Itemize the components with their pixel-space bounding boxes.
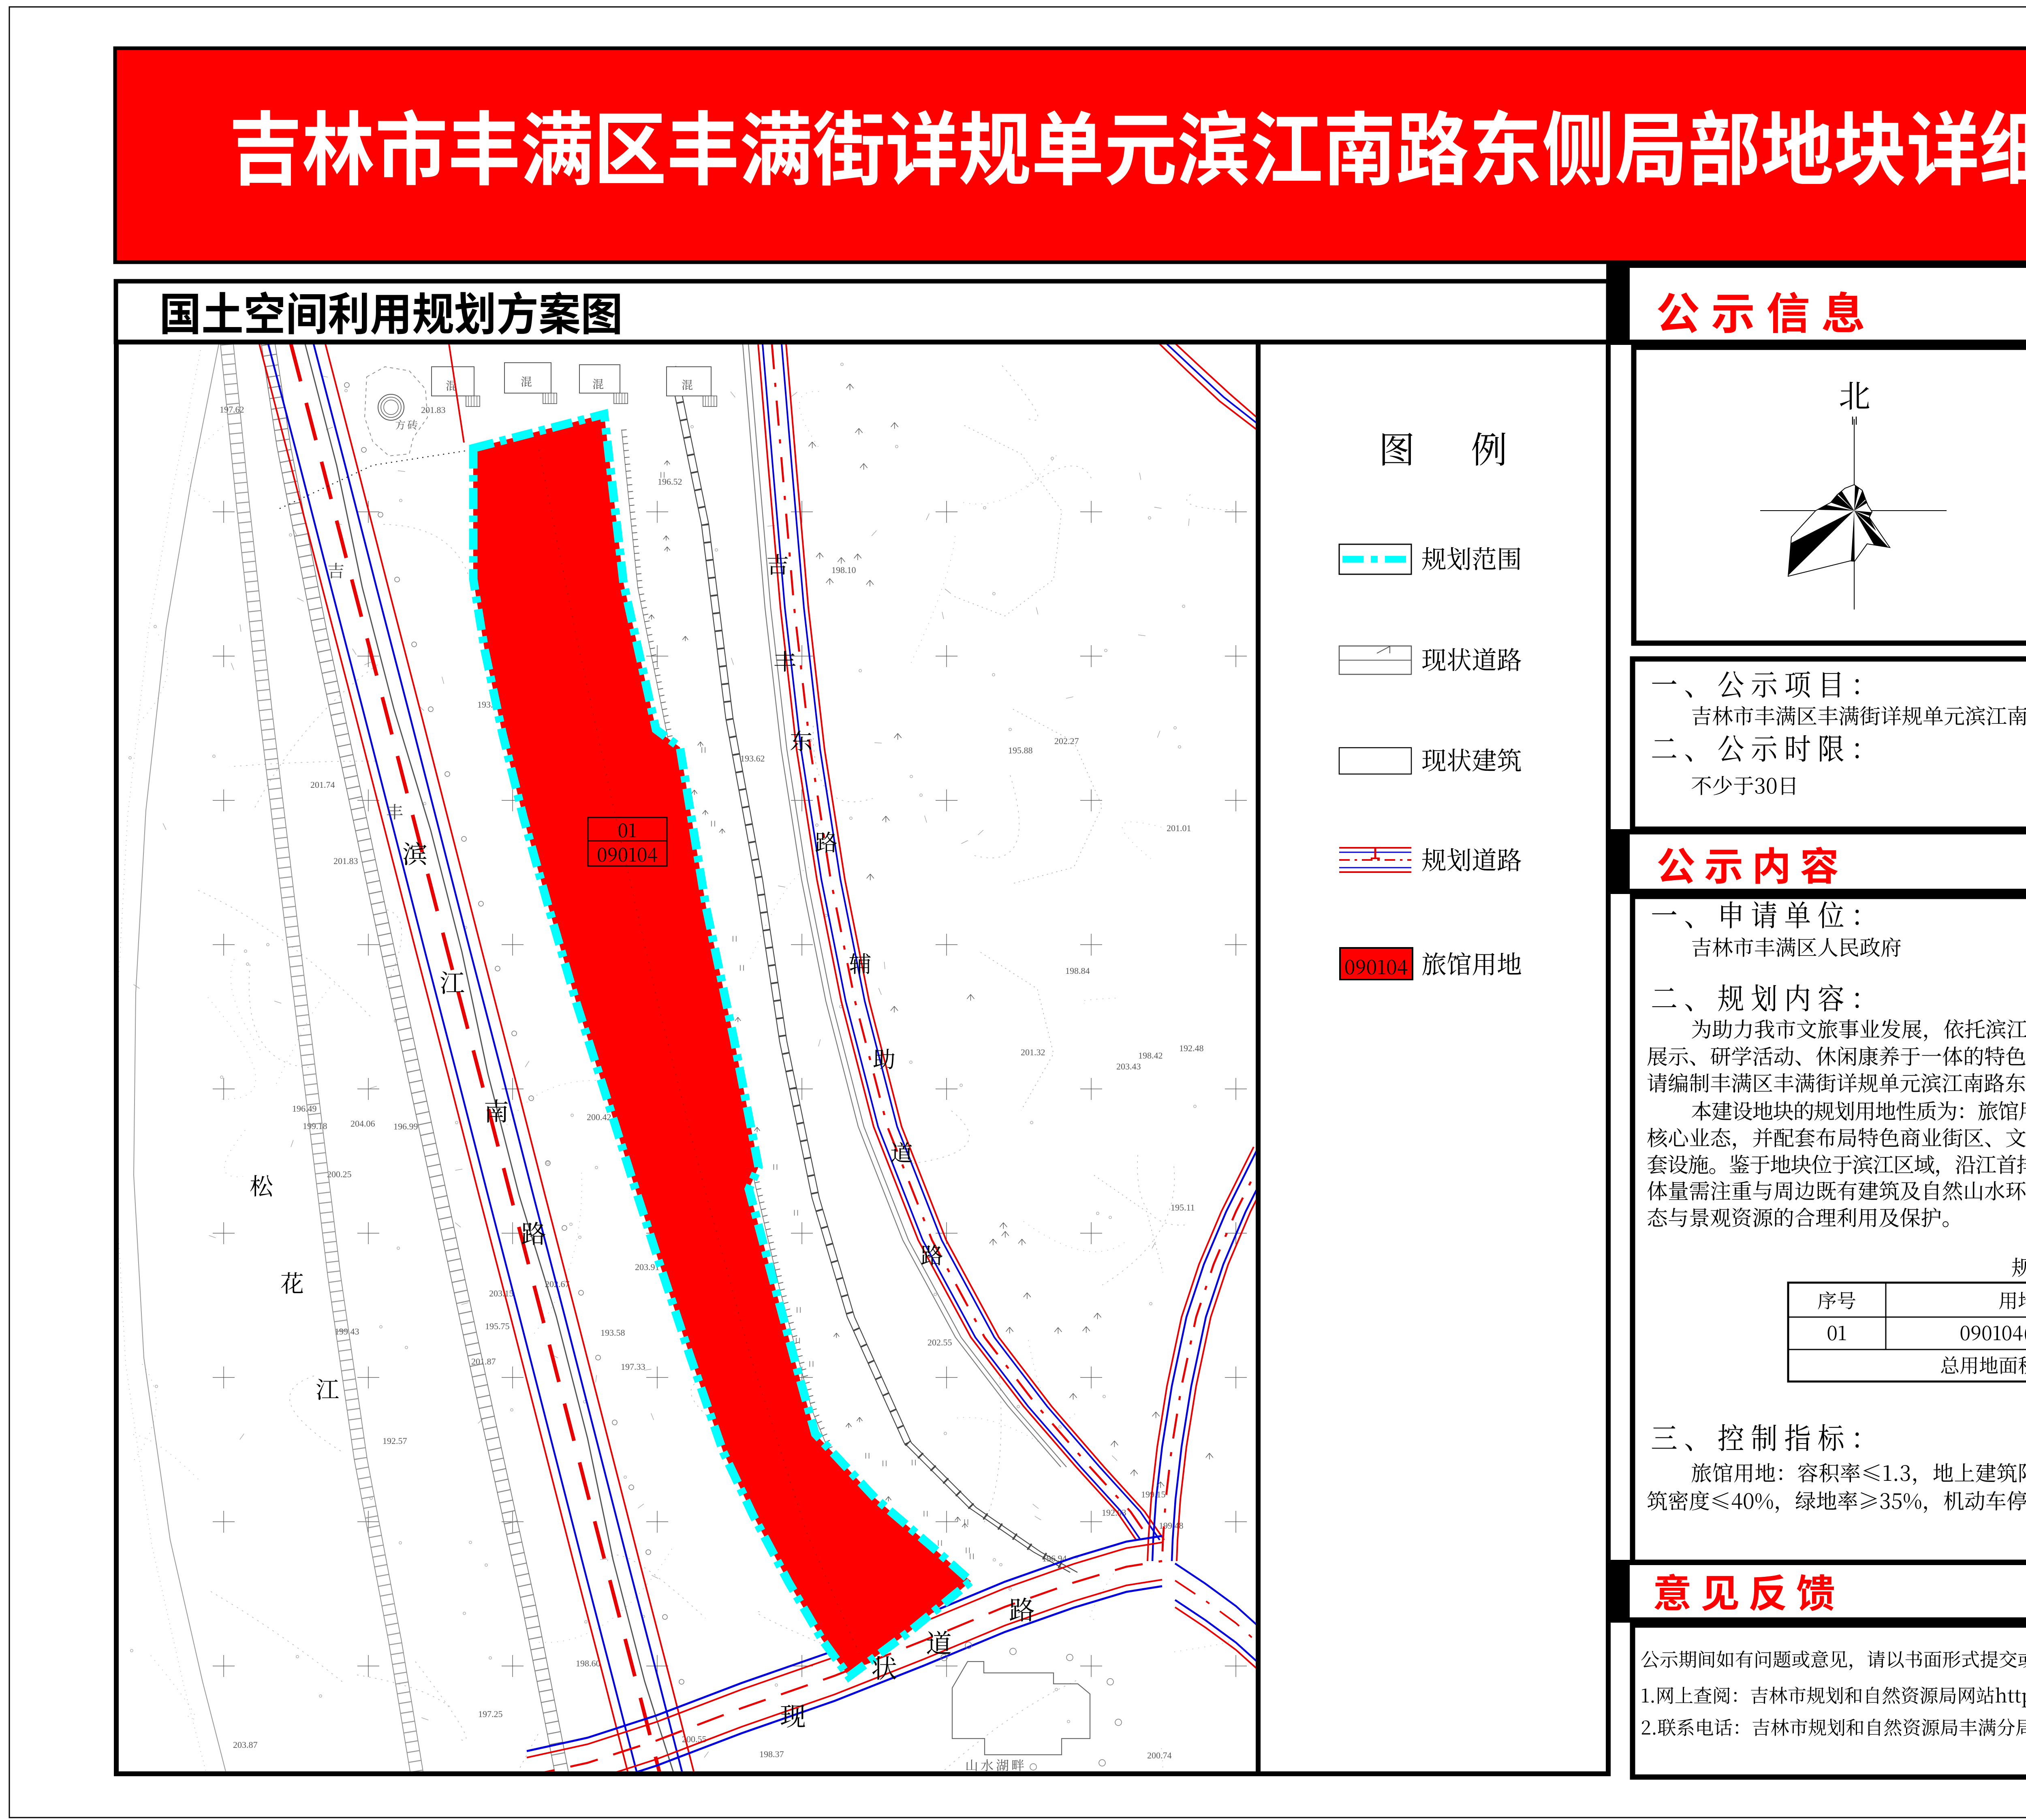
svg-text:193.62: 193.62 bbox=[740, 753, 765, 764]
svg-text:201.83: 201.83 bbox=[333, 856, 358, 866]
svg-text:203.43: 203.43 bbox=[1116, 1061, 1141, 1071]
svg-text:195.11: 195.11 bbox=[1171, 1202, 1195, 1213]
svg-text:198.37: 198.37 bbox=[759, 1749, 784, 1759]
svg-text:197.25: 197.25 bbox=[478, 1709, 503, 1719]
svg-text:196.49: 196.49 bbox=[292, 1104, 317, 1114]
svg-text:193.58: 193.58 bbox=[601, 1328, 625, 1338]
svg-text:203.87: 203.87 bbox=[233, 1740, 258, 1750]
svg-text:204.06: 204.06 bbox=[350, 1119, 375, 1129]
svg-text:200.42: 200.42 bbox=[587, 1112, 611, 1122]
svg-text:198.10: 198.10 bbox=[831, 565, 856, 575]
svg-text:196.99: 196.99 bbox=[393, 1121, 418, 1131]
svg-text:200.25: 200.25 bbox=[327, 1169, 352, 1179]
svg-text:195.75: 195.75 bbox=[485, 1321, 510, 1331]
svg-text:195.88: 195.88 bbox=[1008, 745, 1033, 755]
svg-text:197.33: 197.33 bbox=[621, 1362, 645, 1372]
svg-text:201.01: 201.01 bbox=[1167, 823, 1191, 833]
svg-text:198.60: 198.60 bbox=[576, 1658, 601, 1668]
svg-text:201.74: 201.74 bbox=[310, 780, 335, 790]
svg-text:201.32: 201.32 bbox=[1021, 1047, 1045, 1057]
svg-text:192.57: 192.57 bbox=[383, 1436, 407, 1446]
svg-text:202.55: 202.55 bbox=[928, 1337, 952, 1347]
svg-text:199.18: 199.18 bbox=[303, 1121, 327, 1131]
svg-text:200.74: 200.74 bbox=[1147, 1750, 1172, 1760]
svg-text:203.15: 203.15 bbox=[489, 1288, 514, 1298]
svg-text:192.48: 192.48 bbox=[1179, 1043, 1204, 1053]
svg-text:196.52: 196.52 bbox=[658, 477, 682, 487]
svg-text:202.27: 202.27 bbox=[1054, 736, 1079, 746]
svg-text:199.48: 199.48 bbox=[1159, 1521, 1184, 1531]
svg-text:199.15: 199.15 bbox=[1141, 1489, 1166, 1499]
svg-text:198.84: 198.84 bbox=[1065, 966, 1090, 976]
svg-text:198.42: 198.42 bbox=[1138, 1050, 1163, 1061]
svg-text:201.83: 201.83 bbox=[421, 405, 446, 415]
